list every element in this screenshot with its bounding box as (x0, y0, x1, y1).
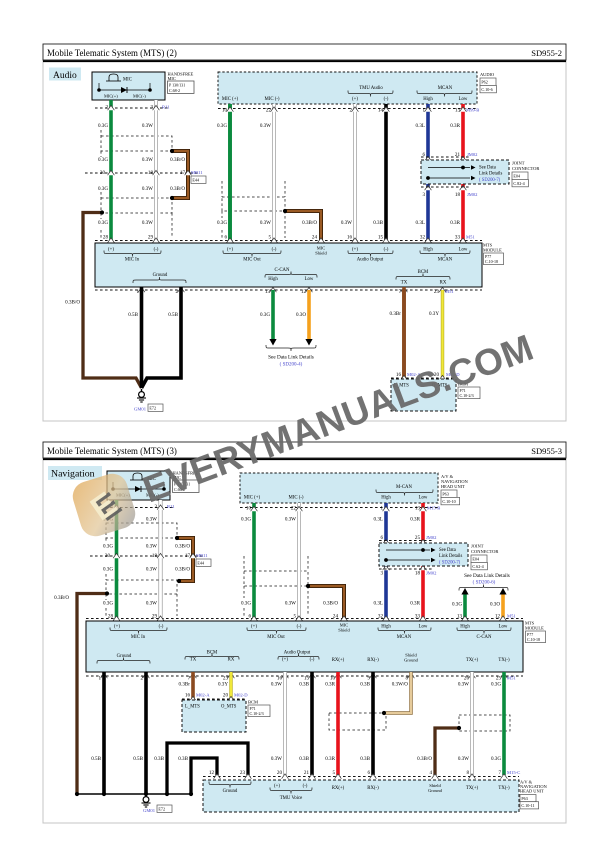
svg-text:( SD200-6): ( SD200-6) (473, 581, 496, 586)
svg-text:GM01: GM01 (143, 808, 156, 813)
svg-text:C-CAN: C-CAN (275, 268, 290, 273)
svg-text:(+): (+) (251, 625, 257, 630)
svg-text:0.3Br: 0.3Br (179, 682, 191, 688)
svg-text:Audio Output: Audio Output (357, 258, 384, 263)
svg-text:M51: M51 (445, 289, 454, 294)
svg-text:Shield: Shield (338, 628, 350, 633)
svg-text:(+): (+) (227, 248, 233, 253)
svg-text:JM02: JM02 (426, 535, 437, 540)
svg-text:TX: TX (401, 281, 408, 286)
svg-text:See Data Link Details: See Data Link Details (268, 355, 314, 361)
svg-text:Low: Low (499, 625, 508, 630)
svg-text:MODULE: MODULE (483, 248, 502, 253)
svg-text:0.3B/O: 0.3B/O (54, 595, 69, 601)
svg-text:M99-B: M99-B (466, 108, 479, 113)
svg-text:23: 23 (434, 289, 440, 295)
svg-text:C.10-18: C.10-18 (485, 259, 498, 264)
svg-text:TX(-): TX(-) (498, 658, 510, 663)
svg-text:Ground: Ground (404, 658, 418, 663)
svg-text:Low: Low (459, 97, 468, 102)
svg-text:30: 30 (100, 170, 106, 176)
svg-text:13: 13 (455, 108, 461, 114)
svg-text:0.3R: 0.3R (450, 220, 460, 226)
svg-text:21: 21 (304, 770, 310, 776)
svg-text:SD955-2: SD955-2 (531, 48, 562, 58)
svg-text:0.3L: 0.3L (416, 123, 425, 129)
svg-text:CONNECTOR: CONNECTOR (471, 549, 498, 554)
svg-text:E04: E04 (513, 174, 520, 179)
svg-text:14: 14 (378, 108, 384, 114)
svg-text:( SD200-4): ( SD200-4) (280, 363, 303, 368)
svg-text:C.68-2: C.68-2 (169, 88, 180, 93)
svg-text:0.3B: 0.3B (154, 756, 164, 762)
svg-text:29: 29 (148, 235, 154, 241)
svg-text:TMU Audio: TMU Audio (359, 86, 383, 91)
svg-text:0.3O: 0.3O (296, 312, 306, 318)
svg-text:0.3B/O: 0.3B/O (417, 756, 432, 762)
svg-text:18: 18 (455, 192, 461, 198)
svg-text:High: High (423, 97, 433, 102)
svg-text:Audio: Audio (53, 71, 77, 81)
svg-text:12: 12 (209, 770, 215, 776)
svg-text:See Data: See Data (479, 166, 497, 171)
svg-text:High: High (268, 277, 278, 282)
svg-text:0.3B: 0.3B (360, 682, 370, 688)
svg-text:Mobile Telematic System (MTS): Mobile Telematic System (MTS) (2) (47, 48, 177, 58)
svg-text:0.3W: 0.3W (260, 123, 271, 129)
svg-text:(-): (-) (272, 248, 277, 253)
svg-text:C.10-6: C.10-6 (481, 87, 492, 92)
svg-text:0.3R: 0.3R (410, 601, 420, 607)
svg-text:RX: RX (228, 658, 235, 663)
svg-text:High: High (423, 248, 433, 253)
svg-text:0.3B: 0.3B (178, 756, 188, 762)
svg-text:C.10-18: C.10-18 (527, 637, 540, 642)
svg-text:M51: M51 (507, 676, 516, 681)
svg-text:0.3G: 0.3G (260, 312, 270, 318)
svg-text:(-): (-) (384, 97, 389, 102)
svg-text:(+): (+) (352, 248, 358, 253)
svg-text:0.3W: 0.3W (271, 682, 282, 688)
svg-text:MIC (-): MIC (-) (288, 496, 303, 501)
svg-text:20: 20 (277, 770, 283, 776)
svg-text:15: 15 (378, 235, 384, 241)
svg-text:Link Details: Link Details (479, 172, 502, 177)
svg-text:Audio Output: Audio Output (284, 651, 311, 656)
svg-text:0.3R: 0.3R (450, 123, 460, 129)
svg-text:Low: Low (419, 625, 428, 630)
svg-text:0.3B/O: 0.3B/O (170, 157, 185, 163)
svg-text:CONNECTOR: CONNECTOR (512, 166, 539, 171)
svg-text:0.3G: 0.3G (103, 544, 113, 550)
svg-text:MCAN: MCAN (397, 635, 412, 640)
svg-text:0.3G: 0.3G (452, 602, 462, 608)
svg-text:0.3Y: 0.3Y (429, 311, 439, 317)
svg-text:0.3W: 0.3W (142, 220, 153, 226)
svg-text:Mobile Telematic System (MTS): Mobile Telematic System (MTS) (3) (47, 446, 177, 456)
svg-text:0.3W: 0.3W (142, 123, 153, 129)
svg-text:MIC In: MIC In (131, 635, 146, 640)
svg-text:0.3B/O: 0.3B/O (302, 220, 317, 226)
svg-text:0.3G: 0.3G (103, 567, 113, 573)
svg-text:R11: R11 (162, 105, 170, 110)
svg-text:( SD200-7): ( SD200-7) (439, 561, 461, 566)
svg-text:0.5B: 0.5B (133, 756, 143, 762)
svg-text:JM02: JM02 (426, 571, 437, 576)
svg-text:0.3W: 0.3W (142, 157, 153, 163)
svg-text:10: 10 (222, 108, 228, 114)
svg-text:M02-D: M02-D (234, 693, 248, 698)
svg-text:0.3B: 0.3B (299, 682, 309, 688)
svg-text:TX(+): TX(+) (466, 658, 479, 663)
svg-text:13: 13 (265, 289, 271, 295)
svg-text:0.3W: 0.3W (285, 601, 296, 607)
svg-text:0.3W: 0.3W (260, 220, 271, 226)
svg-text:0.3G: 0.3G (491, 756, 501, 762)
svg-text:See Data: See Data (439, 548, 457, 553)
svg-text:GM01: GM01 (134, 407, 147, 412)
svg-text:23: 23 (240, 770, 246, 776)
svg-text:R11: R11 (167, 504, 175, 509)
svg-text:MIC (-): MIC (-) (264, 97, 279, 102)
svg-text:HEAD UNIT: HEAD UNIT (520, 789, 544, 794)
svg-text:0.3O: 0.3O (490, 602, 500, 608)
svg-text:(-): (-) (310, 658, 315, 663)
svg-text:0.3Y: 0.3Y (218, 682, 228, 688)
svg-text:0.3L: 0.3L (374, 517, 383, 523)
svg-text:O_MTS: O_MTS (221, 705, 237, 710)
svg-text:MIC: MIC (123, 78, 132, 83)
svg-text:MCAN: MCAN (438, 86, 453, 91)
svg-text:P 130/131: P 130/131 (169, 83, 185, 88)
svg-text:18: 18 (415, 571, 421, 577)
svg-text:JOINT: JOINT (471, 544, 484, 549)
svg-text:E44: E44 (192, 178, 199, 183)
svg-text:MODULE: MODULE (525, 626, 544, 631)
svg-text:M15-B: M15-B (427, 506, 440, 511)
svg-text:Ground: Ground (428, 788, 442, 793)
svg-text:HEAD UNIT: HEAD UNIT (441, 484, 465, 489)
svg-text:L_MTS: L_MTS (185, 705, 200, 710)
svg-text:0.3G: 0.3G (491, 682, 501, 688)
svg-text:28: 28 (103, 235, 109, 241)
svg-text:0.3Br: 0.3Br (390, 311, 402, 317)
svg-text:0.3G: 0.3G (103, 601, 113, 607)
svg-text:JM02: JM02 (467, 152, 478, 157)
svg-text:0.5B: 0.5B (91, 756, 101, 762)
svg-text:Ground: Ground (117, 654, 132, 659)
svg-text:0.3W: 0.3W (458, 682, 469, 688)
svg-text:AUDIO: AUDIO (480, 72, 494, 77)
svg-text:C-CAN: C-CAN (477, 635, 492, 640)
svg-text:(-): (-) (384, 248, 389, 253)
svg-text:MIC(+): MIC(+) (104, 94, 118, 99)
svg-text:16: 16 (185, 693, 191, 699)
svg-text:(-): (-) (303, 784, 308, 789)
svg-text:0.3B/O: 0.3B/O (175, 544, 190, 550)
svg-text:(-): (-) (154, 248, 159, 253)
svg-text:0.3G: 0.3G (217, 123, 227, 129)
svg-text:0.3W: 0.3W (271, 756, 282, 762)
svg-text:(+): (+) (114, 625, 120, 630)
svg-text:0.5B: 0.5B (168, 312, 178, 318)
svg-text:TX(-): TX(-) (498, 786, 510, 791)
svg-text:0.3L: 0.3L (374, 601, 383, 607)
svg-text:RX(+): RX(+) (332, 658, 345, 663)
svg-text:RX: RX (440, 281, 447, 286)
svg-text:0.3W: 0.3W (142, 186, 153, 192)
svg-text:22: 22 (266, 108, 272, 114)
svg-text:Shield: Shield (315, 251, 327, 256)
svg-text:17: 17 (180, 170, 186, 176)
svg-text:MIC (+): MIC (+) (222, 97, 239, 102)
svg-text:P62: P62 (481, 80, 487, 85)
svg-text:20: 20 (223, 693, 229, 699)
svg-text:(+): (+) (352, 97, 358, 102)
svg-text:E44: E44 (197, 561, 204, 566)
svg-text:JM02: JM02 (467, 192, 478, 197)
svg-text:C.10-11: C.10-11 (521, 803, 534, 808)
svg-text:(-): (-) (297, 625, 302, 630)
svg-text:0.3W/O: 0.3W/O (392, 682, 409, 688)
svg-text:MIC: MIC (168, 76, 176, 81)
svg-text:24: 24 (312, 235, 318, 241)
svg-text:(-): (-) (159, 625, 164, 630)
svg-text:M51: M51 (466, 235, 475, 240)
svg-text:0.3W: 0.3W (146, 544, 157, 550)
svg-text:RX(-): RX(-) (367, 786, 379, 791)
svg-text:0.3W: 0.3W (146, 601, 157, 607)
svg-text:RX(+): RX(+) (332, 786, 345, 791)
svg-text:0.3B/O: 0.3B/O (65, 300, 80, 306)
svg-text:P63: P63 (442, 492, 448, 497)
svg-text:MIC Out: MIC Out (267, 635, 285, 640)
svg-text:32: 32 (420, 235, 426, 241)
svg-text:M51: M51 (507, 614, 516, 619)
svg-text:RX(-): RX(-) (367, 658, 379, 663)
svg-text:0.3W: 0.3W (341, 220, 352, 226)
svg-text:M-CAN: M-CAN (396, 485, 413, 490)
svg-text:0.3W: 0.3W (458, 756, 469, 762)
svg-text:17: 17 (185, 553, 191, 559)
svg-text:M02-A: M02-A (196, 693, 210, 698)
svg-text:See Data Link Details: See Data Link Details (464, 573, 510, 579)
svg-text:C.10-10: C.10-10 (442, 499, 455, 504)
svg-text:0.3L: 0.3L (416, 220, 425, 226)
svg-text:MIC(-): MIC(-) (133, 94, 146, 99)
svg-text:Navigation: Navigation (51, 469, 95, 480)
svg-text:(+): (+) (274, 784, 280, 789)
svg-text:18: 18 (152, 553, 158, 559)
svg-text:0.3G: 0.3G (98, 157, 108, 163)
svg-text:0.3R: 0.3R (410, 517, 420, 523)
svg-text:High: High (460, 625, 470, 630)
svg-text:0.5B: 0.5B (128, 312, 138, 318)
svg-text:TX(+): TX(+) (466, 786, 479, 791)
svg-text:0.3B/O: 0.3B/O (170, 186, 185, 192)
svg-text:0.3W: 0.3W (146, 517, 157, 523)
svg-text:0.3R: 0.3R (325, 682, 335, 688)
svg-text:0.3G: 0.3G (98, 186, 108, 192)
svg-text:MIC (+): MIC (+) (244, 496, 261, 501)
svg-text:C.82-4: C.82-4 (513, 181, 524, 186)
svg-text:0.3G: 0.3G (241, 517, 251, 523)
svg-text:(+): (+) (108, 248, 114, 253)
svg-text:MCAN: MCAN (438, 258, 453, 263)
svg-text:30: 30 (105, 553, 111, 559)
svg-text:0.3G: 0.3G (217, 220, 227, 226)
svg-text:0.3B: 0.3B (373, 220, 383, 226)
svg-text:JOINT: JOINT (512, 161, 525, 166)
svg-text:Link Details: Link Details (439, 554, 462, 559)
svg-text:E04: E04 (472, 557, 479, 562)
svg-text:MIC In: MIC In (125, 258, 140, 263)
svg-text:Low: Low (459, 248, 468, 253)
svg-text:0.3G: 0.3G (98, 220, 108, 226)
svg-text:High: High (381, 496, 391, 501)
svg-text:High: High (381, 625, 391, 630)
svg-text:Ground: Ground (153, 273, 168, 278)
svg-text:12: 12 (301, 289, 307, 295)
svg-text:M15-C: M15-C (507, 770, 520, 775)
svg-text:0.3B/O: 0.3B/O (175, 567, 190, 573)
svg-text:(+): (+) (282, 658, 288, 663)
svg-text:TMU Voice: TMU Voice (280, 796, 303, 801)
svg-text:0.3G: 0.3G (98, 123, 108, 129)
svg-text:P63: P63 (521, 796, 527, 801)
svg-text:C.10-2/3: C.10-2/3 (250, 711, 264, 716)
svg-text:Low: Low (305, 277, 314, 282)
svg-text:MR11: MR11 (191, 170, 203, 175)
svg-text:BCM: BCM (248, 700, 258, 705)
svg-text:E72: E72 (149, 406, 156, 411)
svg-text:SD955-3: SD955-3 (531, 446, 562, 456)
svg-text:MR11: MR11 (196, 553, 208, 558)
svg-text:Ground: Ground (223, 789, 238, 794)
svg-text:16: 16 (347, 235, 353, 241)
svg-text:0.3R: 0.3R (325, 756, 335, 762)
svg-text:0.3W: 0.3W (146, 567, 157, 573)
svg-text:0.3B: 0.3B (360, 756, 370, 762)
svg-text:0.3B/O: 0.3B/O (323, 601, 338, 607)
svg-text:33: 33 (455, 235, 461, 241)
svg-text:0.3W: 0.3W (285, 517, 296, 523)
svg-text:0.3G: 0.3G (241, 601, 251, 607)
svg-text:E72: E72 (158, 807, 165, 812)
svg-text:Low: Low (419, 496, 428, 501)
svg-text:TX: TX (190, 658, 197, 663)
svg-text:MIC Out: MIC Out (243, 258, 261, 263)
svg-text:( SD200-7): ( SD200-7) (479, 178, 501, 183)
svg-text:0.3B: 0.3B (299, 756, 309, 762)
svg-text:C.62-4: C.62-4 (472, 564, 483, 569)
